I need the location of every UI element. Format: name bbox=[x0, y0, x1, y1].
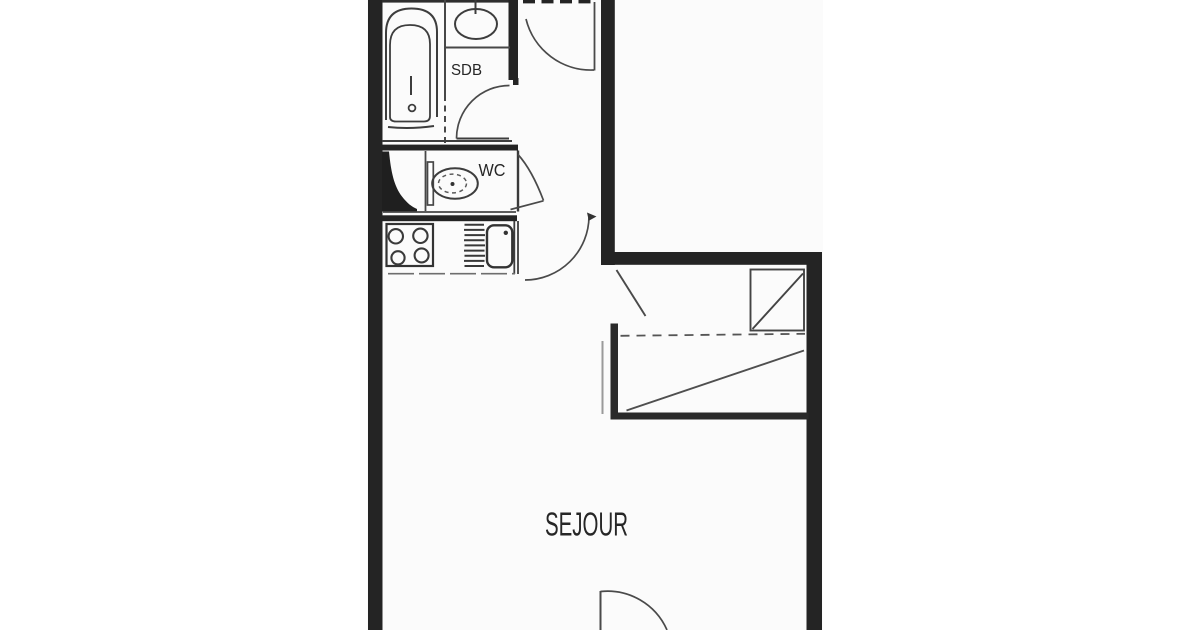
svg-text:SDB: SDB bbox=[451, 62, 482, 79]
svg-text:WC: WC bbox=[479, 160, 506, 180]
svg-text:SEJOUR: SEJOUR bbox=[545, 506, 628, 543]
